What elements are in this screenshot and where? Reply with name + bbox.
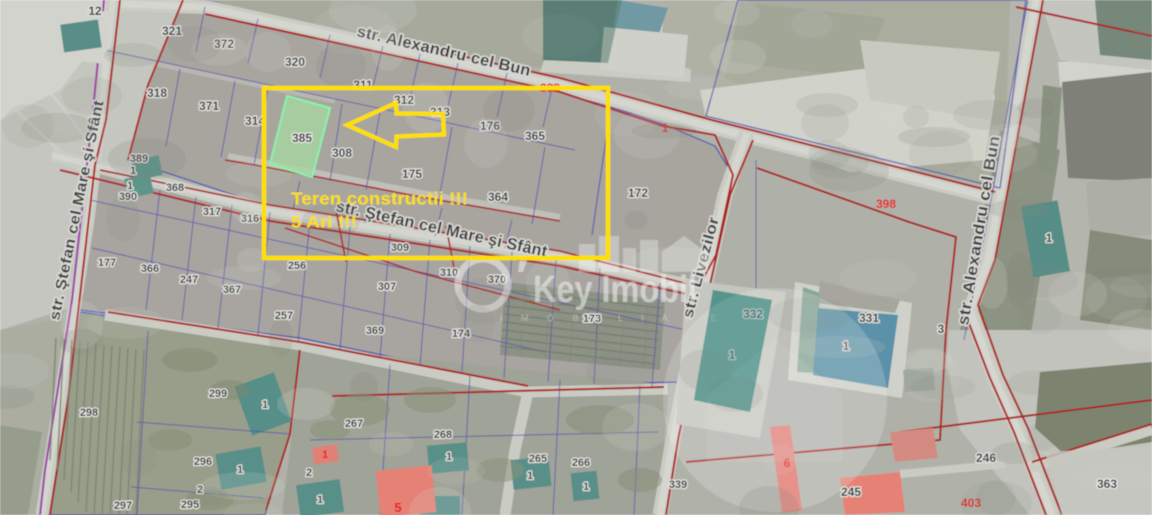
svg-text:363: 363 [1097,477,1117,491]
svg-text:Teren constructii !!!: Teren constructii !!! [291,189,468,209]
svg-text:5 Ari !!!: 5 Ari !!! [291,213,357,232]
svg-text:385: 385 [292,131,312,145]
